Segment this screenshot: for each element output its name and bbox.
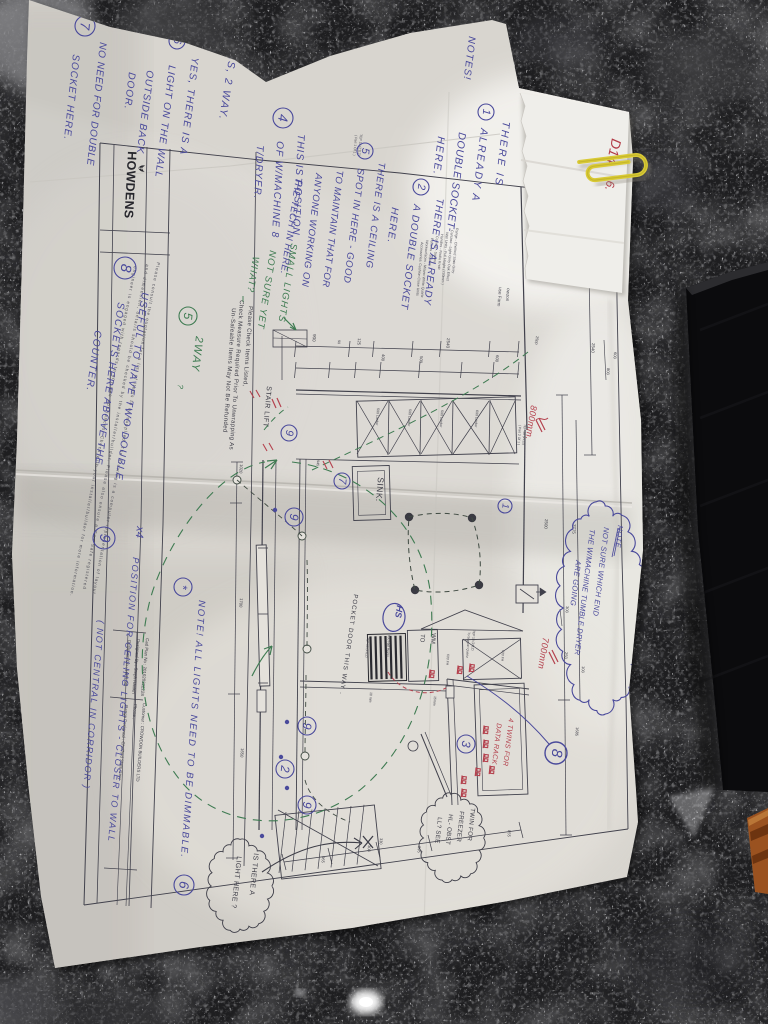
svg-text:855: 855 — [506, 830, 512, 838]
svg-text:25pp: 25pp — [534, 336, 539, 345]
svg-text:1685: 1685 — [574, 727, 580, 737]
svg-text:HS: HS — [393, 605, 405, 619]
svg-text:90: 90 — [337, 340, 341, 344]
svg-text:800: 800 — [605, 368, 611, 376]
svg-text:9: 9 — [96, 533, 113, 543]
svg-text:600: 600 — [494, 355, 500, 363]
svg-text:100: 100 — [580, 666, 586, 674]
svg-text:2540: 2540 — [590, 343, 596, 354]
svg-text:15mm: 15mm — [432, 696, 437, 706]
svg-text:600 FH: 600 FH — [500, 650, 505, 662]
svg-text:9: 9 — [283, 429, 296, 436]
svg-text:1: 1 — [499, 503, 510, 509]
svg-text:x4: x4 — [133, 525, 146, 539]
svg-text:2540: 2540 — [445, 338, 451, 349]
svg-text:500: 500 — [418, 356, 424, 364]
svg-text:300: 300 — [564, 606, 570, 614]
svg-text:TO: TO — [418, 634, 425, 643]
svg-text:250: 250 — [563, 652, 569, 660]
svg-text:965: 965 — [320, 856, 326, 864]
svg-text:600: 600 — [612, 352, 618, 360]
svg-text:1020: 1020 — [238, 464, 244, 474]
svg-text:400: 400 — [380, 354, 386, 362]
svg-text:330: 330 — [379, 838, 383, 845]
svg-text:WM: WM — [429, 633, 436, 644]
svg-text:1: 1 — [480, 108, 493, 115]
svg-text:2: 2 — [415, 182, 428, 190]
svg-text:125: 125 — [356, 338, 362, 346]
svg-text:600 FH: 600 FH — [445, 654, 450, 666]
svg-text:1650: 1650 — [239, 748, 245, 758]
svg-text:945: 945 — [316, 460, 320, 466]
svg-text:900: 900 — [311, 334, 317, 342]
svg-text:4: 4 — [275, 113, 291, 122]
svg-text:2500: 2500 — [543, 519, 549, 530]
svg-text:1700: 1700 — [238, 598, 244, 608]
svg-text:18 mm: 18 mm — [368, 692, 373, 703]
